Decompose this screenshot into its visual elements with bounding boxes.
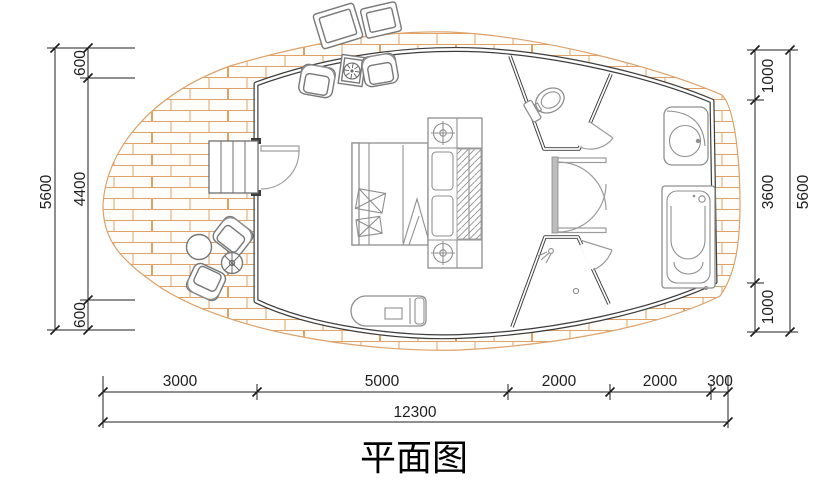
dim-label-bottom-1: 3000 xyxy=(163,373,198,390)
dim-label-bottom-4: 2000 xyxy=(643,373,678,390)
dim-label-right-top: 1000 xyxy=(760,58,777,93)
dim-label-bottom-5: 300 xyxy=(707,373,733,390)
bathtub xyxy=(662,186,715,290)
dim-label-left-middle: 4400 xyxy=(72,171,89,206)
wash-basin xyxy=(664,107,708,165)
faucet xyxy=(696,139,700,143)
tea-table xyxy=(338,54,366,86)
dim-label-bottom-3: 2000 xyxy=(542,373,577,390)
armchair-left xyxy=(298,63,337,98)
dim-label-bottom-total: 12300 xyxy=(393,404,436,421)
dim-label-left-bottom: 600 xyxy=(72,302,89,328)
entry-stairs xyxy=(209,141,258,193)
lounge-daybed xyxy=(351,296,426,326)
dimension-bottom: 3000 5000 2000 2000 300 12300 xyxy=(99,373,734,428)
dim-label-right-total: 5600 xyxy=(795,174,812,209)
dimension-right: 1000 3600 1000 5600 xyxy=(747,46,812,337)
outdoor-round-table xyxy=(187,235,212,260)
floor-plan-canvas: 5600 600 4400 600 1000 3600 1000 5600 30… xyxy=(0,0,837,496)
floor-plan-page: 5600 600 4400 600 1000 3600 1000 5600 30… xyxy=(0,0,837,496)
dim-label-right-middle: 3600 xyxy=(760,174,777,209)
dim-label-right-bottom: 1000 xyxy=(760,289,777,324)
wardrobe-closet xyxy=(428,118,482,268)
drawing-title: 平面图 xyxy=(360,437,468,478)
dim-label-bottom-2: 5000 xyxy=(365,373,400,390)
outdoor-flower-table xyxy=(222,253,243,274)
double-bed xyxy=(352,143,430,245)
dim-label-left-top: 600 xyxy=(72,50,89,76)
corridor-wall xyxy=(552,157,558,233)
armchair-right xyxy=(361,52,400,87)
dim-label-left-total: 5600 xyxy=(38,174,55,209)
